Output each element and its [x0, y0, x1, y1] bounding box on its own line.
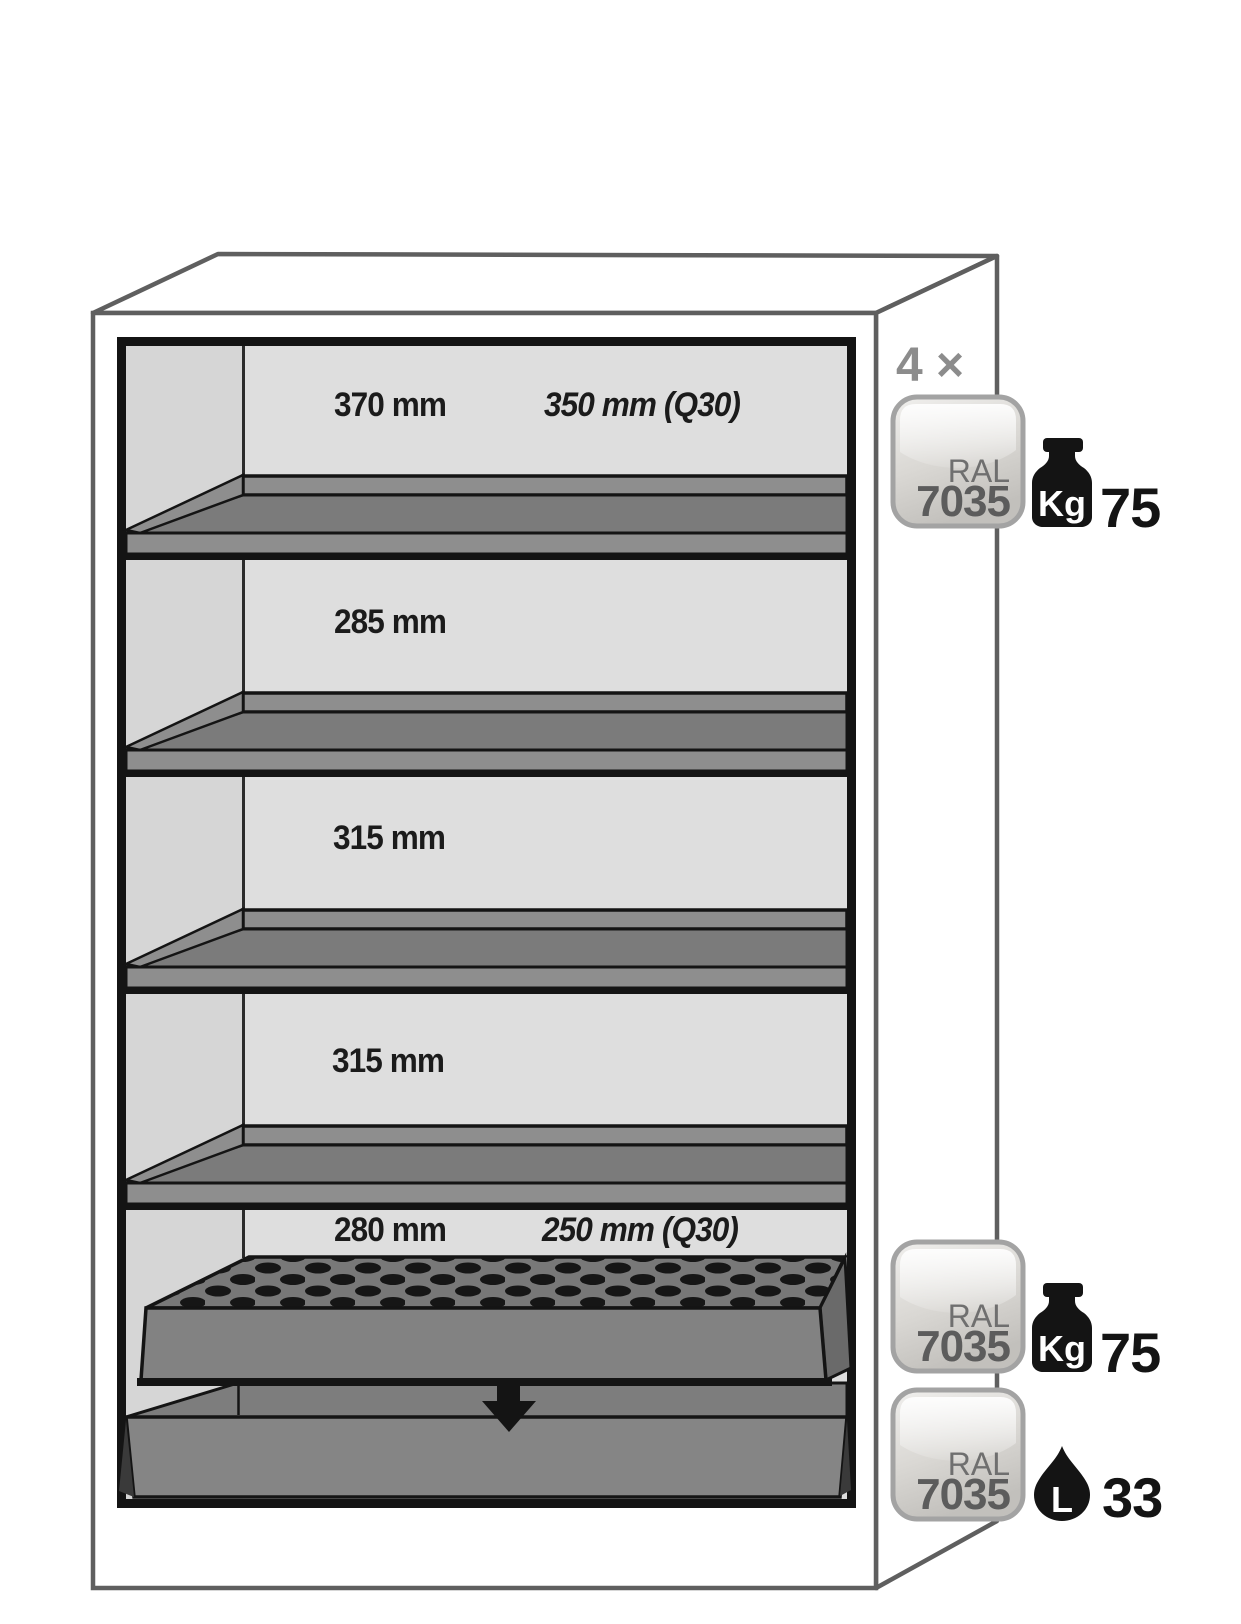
- cabinet-top-face: [93, 254, 997, 313]
- shelf: [126, 475, 847, 560]
- insert-front-face: [141, 1308, 826, 1380]
- weight-unit-label: Kg: [1038, 1328, 1086, 1369]
- ral-badge-line2: 7035: [916, 1322, 1010, 1371]
- tray-volume-value: 33: [1102, 1466, 1162, 1529]
- cabinet-diagram-page: 370 mm 350 mm (Q30) 285 mm 315 mm 315 mm…: [0, 0, 1241, 1624]
- shelf-count-label: 4 ×: [896, 339, 964, 392]
- compartment-1-depth-q30-label: 350 mm (Q30): [544, 386, 741, 424]
- insert-load-value: 75: [1100, 1321, 1160, 1384]
- shelf: [126, 692, 847, 777]
- bottom-sump-tray: [119, 1383, 851, 1497]
- compartment-3-depth-label: 315 mm: [333, 819, 445, 857]
- ral-badge-line2: 7035: [916, 1470, 1010, 1519]
- compartment-1-depth-label: 370 mm: [334, 386, 446, 424]
- compartment-5-depth-q30-label: 250 mm (Q30): [541, 1211, 739, 1249]
- tray-front-face: [126, 1417, 847, 1497]
- shelf: [126, 1125, 847, 1210]
- weight-unit-label: Kg: [1038, 483, 1086, 524]
- compartment-5-depth-label: 280 mm: [334, 1211, 446, 1249]
- compartment-2-depth-label: 285 mm: [334, 603, 446, 641]
- shelf: [126, 909, 847, 994]
- shelf-load-value: 75: [1100, 476, 1160, 539]
- cabinet-diagram: 370 mm 350 mm (Q30) 285 mm 315 mm 315 mm…: [0, 0, 1241, 1624]
- compartment-4-depth-label: 315 mm: [332, 1042, 444, 1080]
- perforated-insert: [137, 1257, 851, 1386]
- ral-badge-line2: 7035: [916, 477, 1010, 526]
- insert-base-line: [137, 1378, 832, 1386]
- tray-rim-top: [126, 1383, 847, 1417]
- volume-unit-label: L: [1051, 1479, 1073, 1520]
- insert-perforation-holes: [146, 1257, 845, 1308]
